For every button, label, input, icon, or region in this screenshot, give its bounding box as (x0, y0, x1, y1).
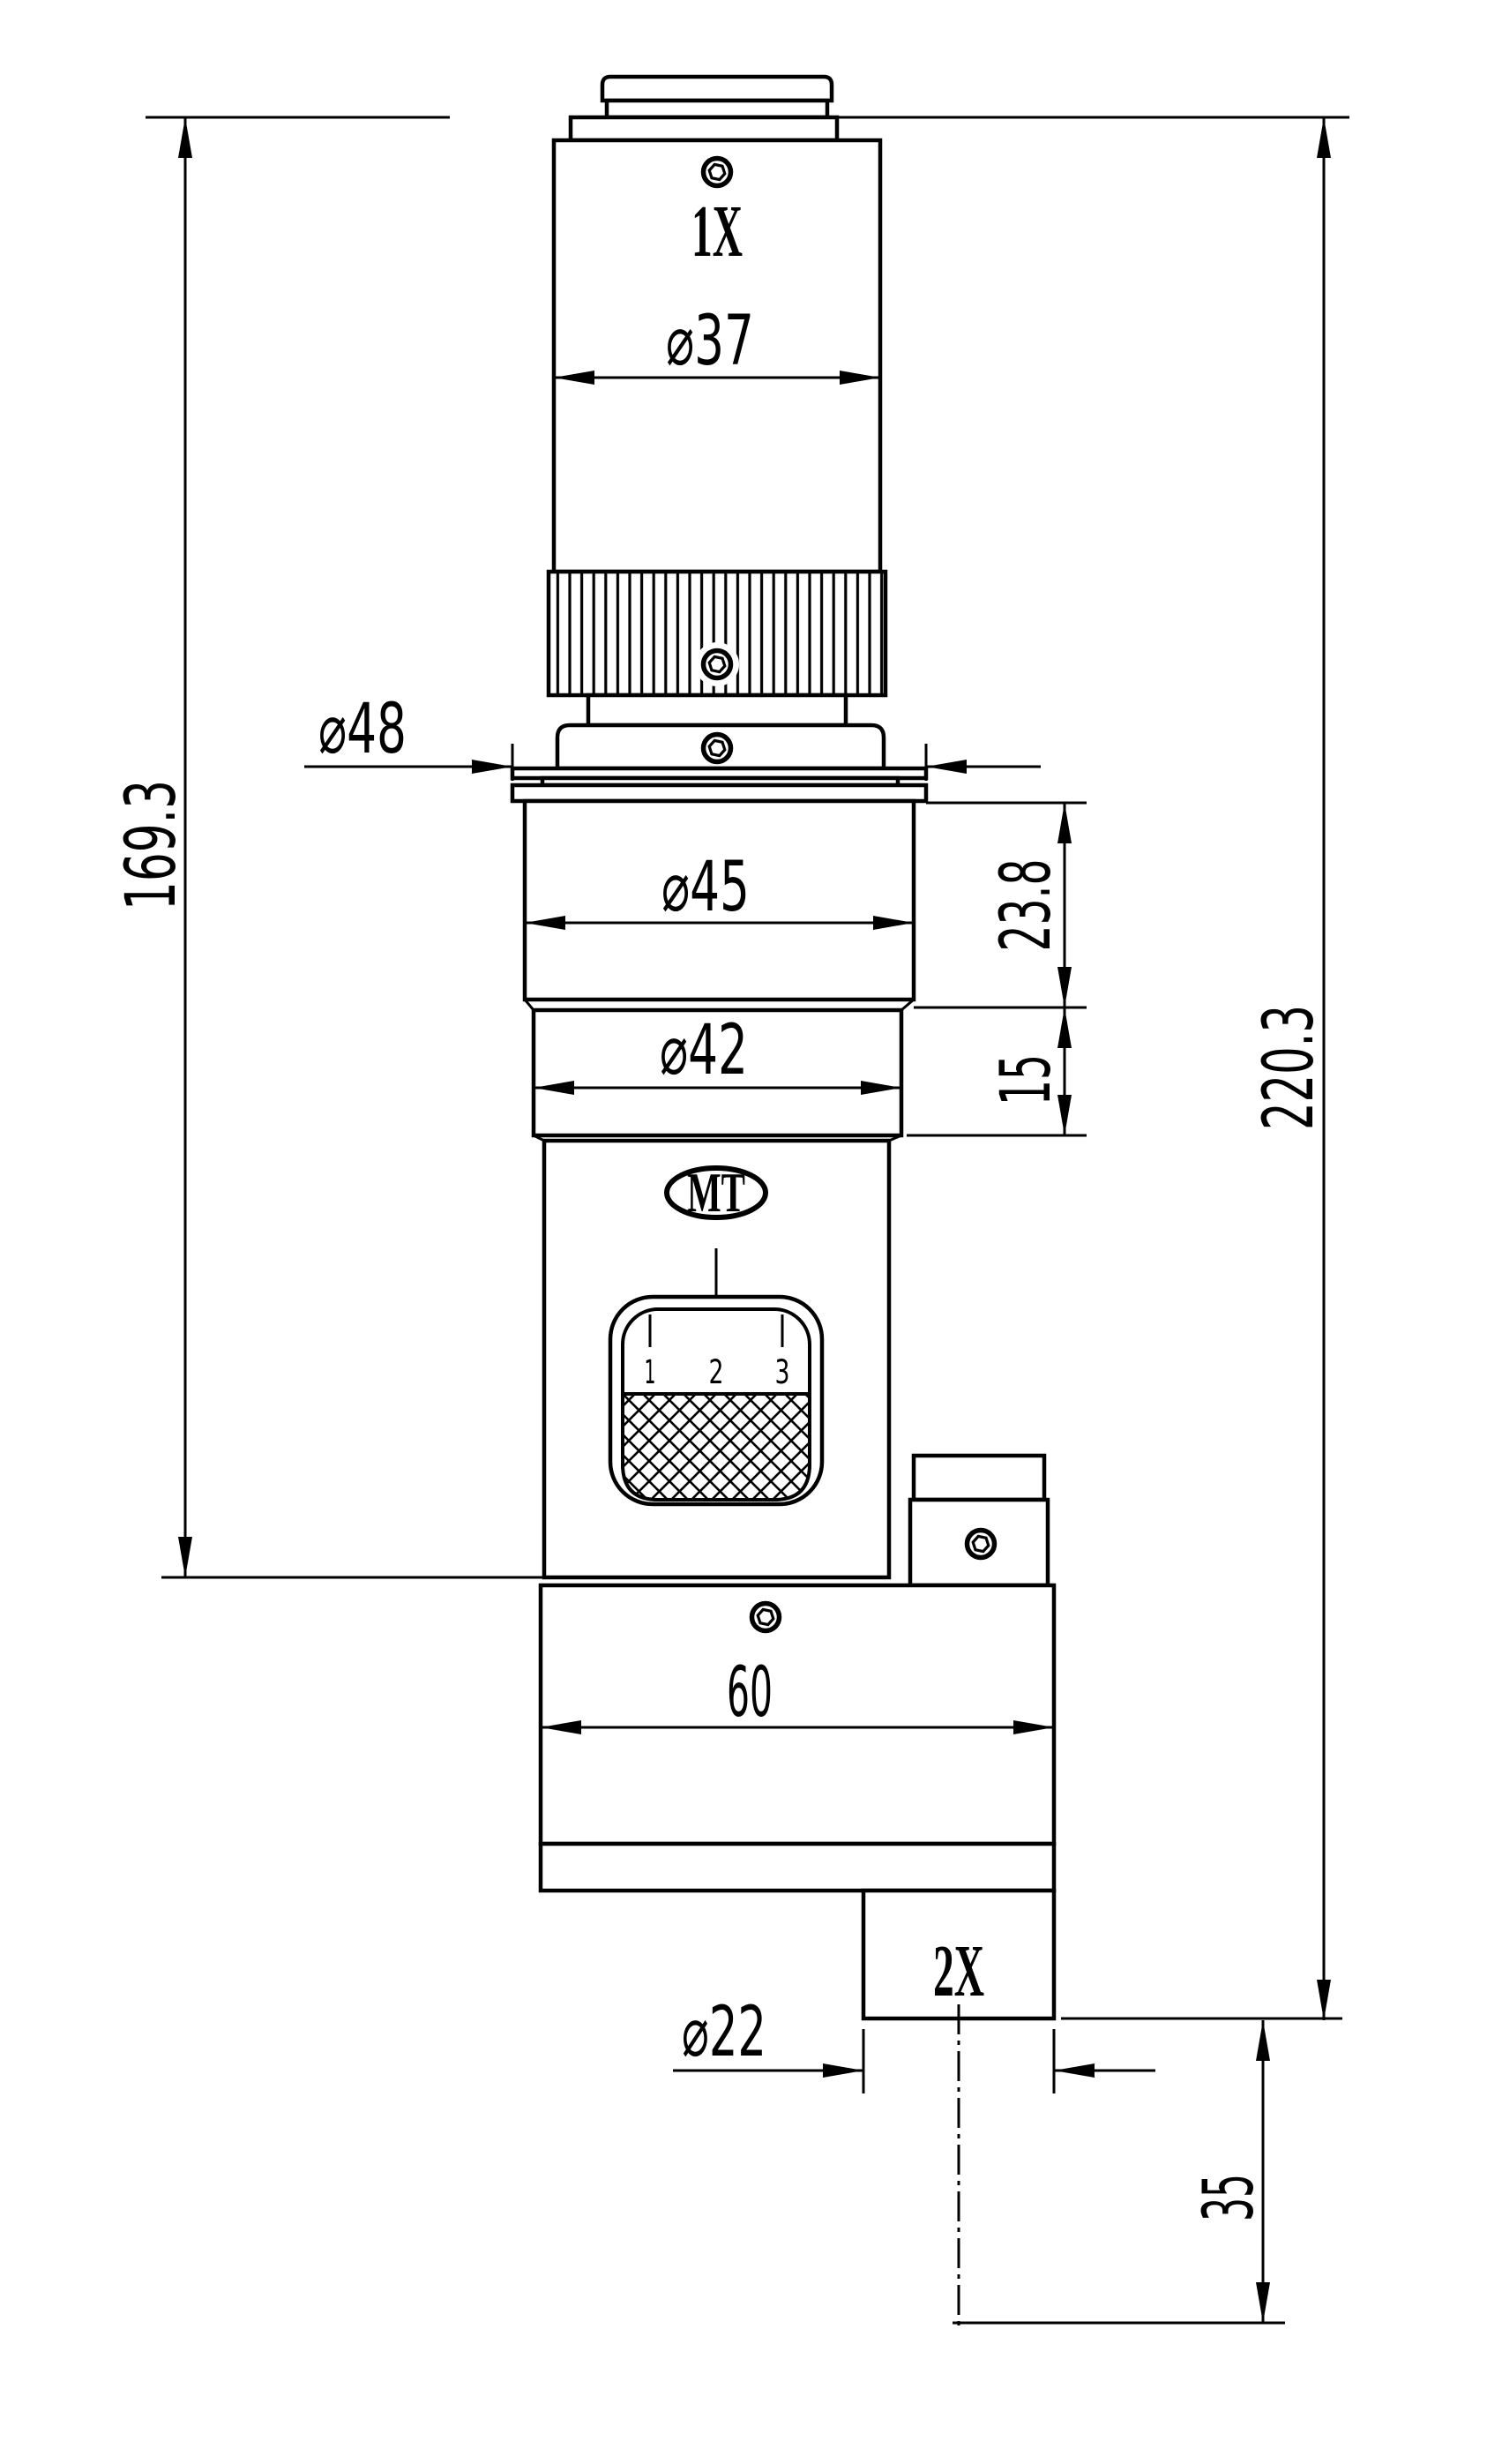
logo-text: MT (687, 1161, 745, 1224)
dim-220-3: 220.3 (1061, 117, 1342, 2020)
top-magnification-label: 1X (691, 191, 743, 273)
scale-number-1: 1 (645, 1353, 656, 1391)
dim-60-label: 60 (727, 1653, 773, 1733)
scale-number-2: 2 (709, 1353, 724, 1391)
top-cap-upper (602, 77, 832, 101)
base-plate-lower (541, 1844, 1054, 1891)
top-cap-lower (607, 101, 827, 117)
dim-dia48-label: ⌀48 (318, 690, 407, 769)
dim-15: 15 (907, 1007, 1087, 1135)
dim-23-8: 23.8 (914, 803, 1087, 1007)
hex-screw-icon (752, 1604, 780, 1631)
technical-drawing: 1X MT (0, 0, 1487, 2464)
dim-169-3-label: 169.3 (112, 780, 191, 910)
hex-screw-icon (704, 159, 731, 186)
base-plate-upper (541, 1585, 1054, 1844)
hex-screw-icon (704, 651, 731, 678)
dim-23-8-label: 23.8 (987, 859, 1066, 952)
side-block-top (914, 1456, 1044, 1500)
cap-flange (571, 117, 837, 140)
knurl-crosshatch (623, 1394, 810, 1500)
neck (588, 695, 846, 725)
dim-35-label: 35 (1190, 2174, 1269, 2221)
drawing-page: 1X MT (0, 0, 1487, 2464)
part-view: 1X MT (512, 77, 1054, 2326)
dim-dia22-label: ⌀22 (682, 1993, 766, 2072)
dim-220-3-label: 220.3 (1250, 1005, 1329, 1130)
dim-35: 35 (953, 2020, 1285, 2323)
dim-dia45-label: ⌀45 (661, 848, 750, 927)
flange-bottom-plate (512, 785, 926, 801)
dim-15-label: 15 (987, 1054, 1066, 1105)
dim-dia37-label: ⌀37 (666, 302, 754, 381)
dim-dia42-label: ⌀42 (660, 1011, 748, 1090)
knurled-ring (549, 572, 885, 695)
scale-number-3: 3 (775, 1353, 790, 1391)
hex-screw-icon (704, 735, 731, 762)
dim-169-3: 169.3 (112, 117, 191, 1577)
bottom-magnification-label: 2X (933, 1930, 984, 2012)
hex-screw-icon (968, 1531, 995, 1558)
